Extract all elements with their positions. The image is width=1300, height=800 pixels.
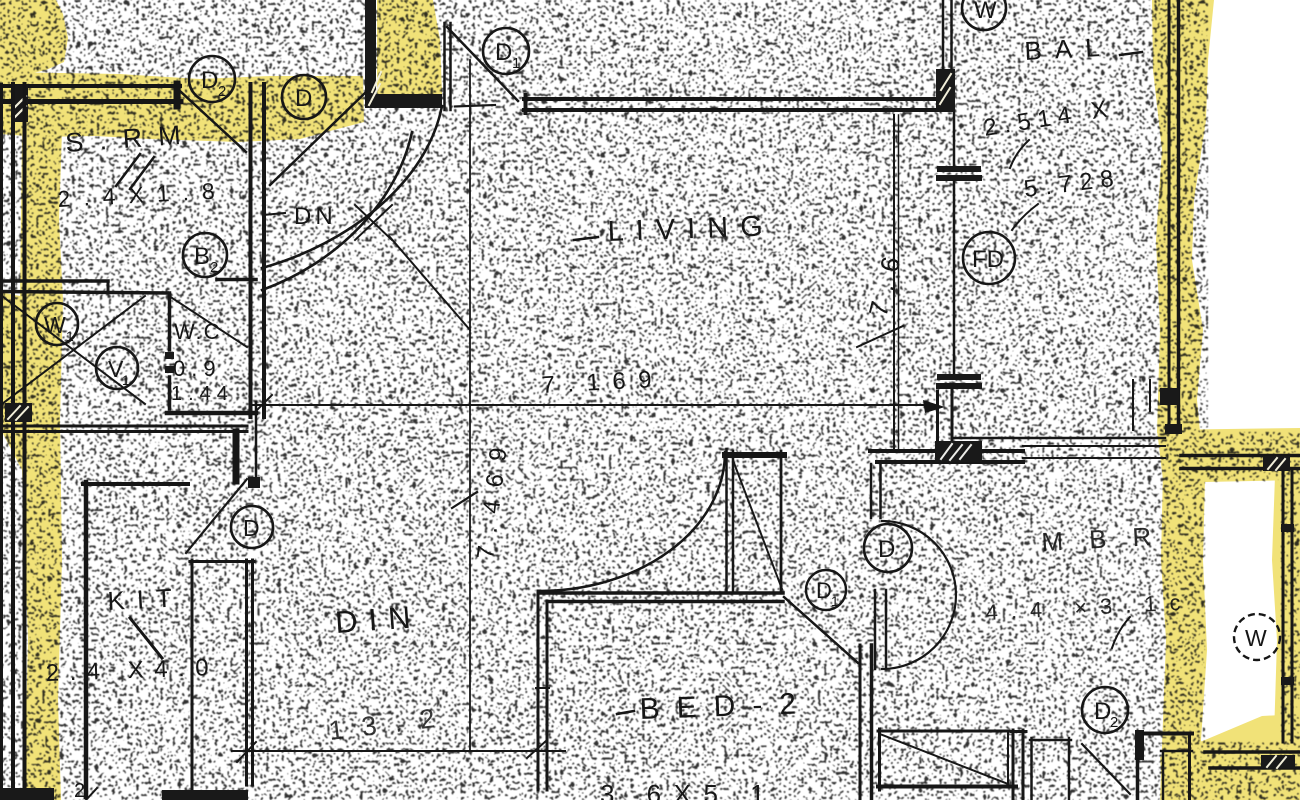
svg-text:FD: FD xyxy=(972,246,1004,273)
svg-text:1: 1 xyxy=(831,593,839,609)
svg-text:D: D xyxy=(495,39,512,66)
svg-text:1: 1 xyxy=(512,55,520,72)
svg-text:1: 1 xyxy=(66,328,74,344)
svg-text:2: 2 xyxy=(1110,714,1118,731)
svg-text:D: D xyxy=(201,67,218,94)
svg-text:KIT: KIT xyxy=(107,582,185,616)
svg-text:0.9: 0.9 xyxy=(173,356,222,381)
svg-text:1: 1 xyxy=(122,372,130,388)
svg-text:D: D xyxy=(1094,698,1111,725)
svg-text:BAL: BAL xyxy=(1024,31,1114,66)
svg-text:D: D xyxy=(295,85,312,112)
svg-text:BED-2: BED-2 xyxy=(639,687,813,726)
svg-text:3.6X5.1: 3.6X5.1 xyxy=(600,779,777,800)
svg-text:DN: DN xyxy=(294,203,337,230)
svg-text:2: 2 xyxy=(74,780,85,800)
svg-text:W: W xyxy=(44,312,66,338)
svg-text:LIVING: LIVING xyxy=(607,210,775,248)
svg-text:D: D xyxy=(816,578,832,603)
svg-text:2: 2 xyxy=(210,259,218,276)
svg-text:W.C: W.C xyxy=(174,319,222,344)
svg-text:W: W xyxy=(1245,625,1267,651)
svg-text:D: D xyxy=(878,536,895,563)
svg-text:1.44: 1.44 xyxy=(171,383,234,405)
svg-text:DIN: DIN xyxy=(334,599,423,640)
svg-text:W: W xyxy=(974,0,997,24)
svg-text:2: 2 xyxy=(218,83,226,100)
svg-text:D: D xyxy=(243,515,260,541)
svg-text:B: B xyxy=(194,243,210,270)
